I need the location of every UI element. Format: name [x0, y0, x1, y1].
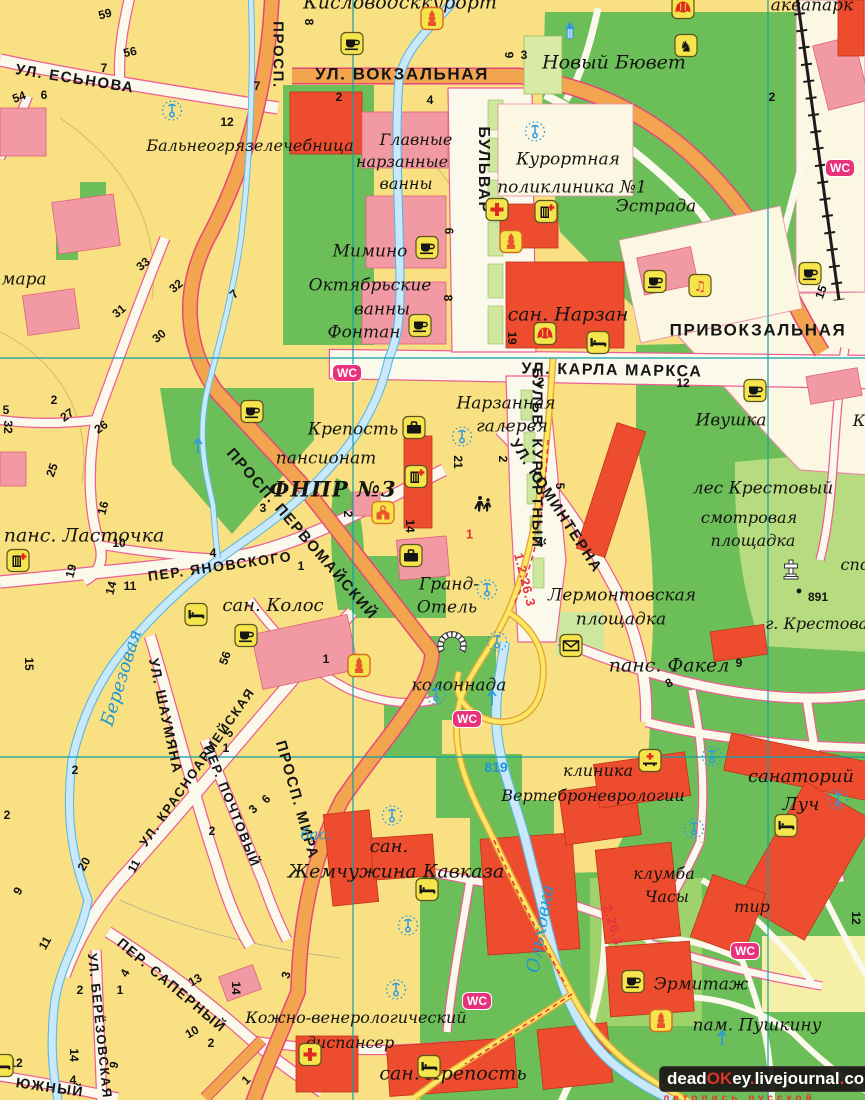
- medbuilding-icon: [404, 465, 428, 494]
- flowarrow-icon: [188, 435, 208, 462]
- dot-icon: [795, 582, 803, 600]
- place-label-san-kolos: сан. Колос: [222, 597, 323, 615]
- theater-icon: [533, 322, 557, 351]
- place-label-otel: Отель: [417, 600, 477, 617]
- place-label-vertebro: Вертеброневрологии: [501, 788, 684, 804]
- house-number: 30: [150, 327, 168, 345]
- flowarrow-icon: [712, 1027, 732, 1054]
- fountain-icon: [522, 119, 548, 150]
- street-label-ul-berezovskaya: УЛ. БЕРЁЗОВСКАЯ: [86, 953, 114, 1100]
- house-number: 11: [37, 935, 54, 952]
- house-number: 2: [769, 91, 776, 103]
- house-number: 10: [112, 537, 125, 549]
- house-number: 20: [75, 855, 92, 873]
- place-label-kozhno: Кожно-венерологический: [245, 1010, 466, 1026]
- music-icon: ♫: [688, 274, 712, 303]
- colonnade-icon: [435, 626, 469, 661]
- place-label-route-2-26-3: 2.26.3: [601, 903, 626, 947]
- place-label-berezovaya: Березовая: [99, 628, 145, 729]
- medbuilding-icon: [6, 549, 30, 578]
- fountain-icon: [379, 803, 405, 834]
- place-label-luch: Луч: [783, 796, 820, 814]
- house-number: 5: [554, 483, 566, 490]
- coffee-icon: [234, 624, 258, 653]
- house-number: 7: [101, 62, 108, 74]
- place-label-route-1-2-26-3: 1.2.26.3: [512, 552, 538, 609]
- house-number: 27: [58, 406, 76, 423]
- place-label-krepost: Крепость: [308, 422, 398, 439]
- place-label-chasy: Часы: [645, 889, 689, 905]
- place-label-estrada: Эстрада: [616, 199, 697, 216]
- watermark-segment: dead: [667, 1069, 707, 1088]
- house-number: 14: [103, 580, 118, 596]
- coffee-icon: [643, 270, 667, 299]
- coffee-icon: [743, 379, 767, 408]
- svg-text:♞: ♞: [679, 38, 692, 56]
- cross-icon: [485, 198, 509, 227]
- map-overlay: УЛ. ЕСЬНОВАПРОСП.УЛ. ВОКЗАЛЬНАЯБУЛЬВАРБУ…: [0, 0, 865, 1100]
- tower-icon: [499, 230, 523, 259]
- house-number: 21: [452, 455, 464, 468]
- house-number: 11: [124, 580, 137, 592]
- house-number: 9: [503, 52, 515, 59]
- place-label-san-zh: сан.: [370, 838, 408, 856]
- street-label-per-saperny: ПЕР. САПЕРНЫЙ: [115, 935, 229, 1034]
- house-number: 3: [521, 49, 528, 61]
- fountain-icon: [681, 816, 707, 847]
- house-number: 13: [186, 971, 204, 988]
- coffee-icon: [415, 236, 439, 265]
- house-number: 8: [663, 676, 675, 690]
- fountain-icon: [699, 744, 725, 775]
- place-label-fontan: Фонтан: [328, 325, 401, 342]
- place-label-zhemchuzhina: Жемчужина Кавказа: [288, 863, 504, 882]
- bed-icon: [586, 331, 610, 360]
- street-label-ul-vokzalnaya: УЛ. ВОКЗАЛЬНАЯ: [315, 66, 489, 83]
- school-icon: [371, 501, 395, 530]
- house-number: 2: [342, 511, 354, 518]
- house-number: 56: [122, 45, 138, 60]
- wc-icon: WC: [730, 942, 760, 960]
- place-label-ploshchadka-1: площадка: [711, 533, 796, 549]
- house-number: 2: [77, 984, 84, 996]
- house-number: 1: [239, 1073, 252, 1086]
- place-label-grand: Гранд-: [419, 577, 479, 594]
- house-number: 6: [443, 228, 455, 235]
- tower-icon: [420, 7, 444, 36]
- house-number: 2: [336, 91, 343, 103]
- envelope-icon: [559, 634, 583, 663]
- place-label-les-krestovy: лес Крестовый: [693, 481, 833, 498]
- svg-text:♫: ♫: [694, 279, 707, 295]
- bluetower-icon: [558, 20, 582, 49]
- house-number: 8: [442, 295, 454, 302]
- watermark-segment: OK: [707, 1069, 733, 1088]
- bed-icon: [415, 878, 439, 907]
- place-label-spo: спо: [841, 557, 865, 573]
- wc-icon: WC: [332, 364, 362, 382]
- tower-icon: [347, 654, 371, 683]
- house-number: 4: [70, 1074, 77, 1086]
- place-label-mara: мара: [1, 272, 46, 289]
- coffee-icon: [798, 262, 822, 291]
- house-number: 10: [183, 1023, 201, 1040]
- place-label-ploshchadka-2: площадка: [576, 612, 666, 629]
- place-label-mimino: Мимино: [333, 244, 408, 261]
- place-label-k-fragment: К: [853, 413, 865, 429]
- place-label-smotrovaya: смотровая: [701, 510, 797, 526]
- house-number: 19: [63, 563, 78, 579]
- house-number: 32: [167, 277, 185, 295]
- fountain-icon: [395, 913, 421, 944]
- street-label-prosp-top: ПРОСП.: [271, 21, 286, 89]
- place-label-elev-819: 819: [484, 760, 507, 774]
- street-label-privokzalnaya: ПРИВОКЗАЛЬНАЯ: [670, 322, 847, 339]
- house-number: 15: [23, 657, 35, 670]
- place-label-san-narzan: сан. Нарзан: [508, 306, 629, 325]
- cross-icon: [298, 1043, 322, 1072]
- house-number: 7: [254, 80, 261, 92]
- house-number: 19: [506, 331, 518, 344]
- street-label-per-yanovskogo: ПЕР. ЯНОВСКОГО: [147, 549, 293, 583]
- street-label-ul-esnova: УЛ. ЕСЬНОВА: [14, 62, 135, 96]
- house-number: 2: [209, 825, 216, 837]
- house-number: 891: [808, 591, 828, 603]
- house-number: 12: [220, 116, 233, 128]
- bed-icon: [0, 1054, 14, 1083]
- house-number: 1: [298, 560, 305, 572]
- house-number: 2: [51, 394, 58, 406]
- place-label-akvapark: аквапарк: [771, 0, 853, 15]
- bed-icon: [184, 603, 208, 632]
- watermark-subtitle: летопись русской усадьбы: [659, 1093, 865, 1100]
- suitcase-icon: [402, 416, 426, 445]
- place-label-klinika: клиника: [563, 763, 633, 779]
- house-number: 6: [259, 792, 272, 805]
- fountain-icon: [383, 977, 409, 1008]
- place-label-pans-lastochka: панс. Ласточка: [4, 527, 165, 546]
- watermark-segment: livejournal: [755, 1069, 840, 1088]
- house-number: 26: [92, 418, 110, 435]
- place-label-balneo: Бальнеогрязелечебница: [146, 138, 353, 154]
- fountain-icon: [484, 629, 510, 660]
- place-label-novy-byuvet: Новый Бювет: [542, 54, 686, 73]
- house-number: 59: [97, 6, 113, 21]
- place-label-kurortnaya: Курортная: [516, 152, 620, 169]
- bed-icon: [417, 1055, 441, 1084]
- place-label-kislovodskkurort: Кисловодсккурорт: [303, 0, 497, 13]
- horse-icon: ♞: [674, 34, 698, 63]
- wc-icon: WC: [825, 159, 855, 177]
- house-number: 54: [11, 89, 28, 105]
- house-number: 4: [427, 94, 434, 106]
- watermark-segment: com: [844, 1069, 865, 1088]
- house-number: 2: [497, 456, 509, 463]
- pedestrians-icon: [472, 494, 496, 523]
- place-label-lermontovskaya: Лермонтовская: [548, 588, 696, 605]
- place-label-galereya: галерея: [476, 419, 548, 436]
- watermark: deadOKey.livejournal.com летопись русско…: [659, 1066, 865, 1100]
- coffee-icon: [240, 400, 264, 429]
- place-label-pansionat: пансионат: [276, 451, 376, 468]
- house-number: 7: [227, 287, 240, 300]
- house-number: 1: [117, 984, 124, 996]
- coffee-icon: [621, 970, 645, 999]
- house-number: 2: [4, 809, 11, 821]
- fountain-icon: [423, 682, 449, 713]
- house-number: 4: [210, 547, 217, 559]
- bed-icon: [774, 814, 798, 843]
- watermark-text: deadOKey.livejournal.com: [659, 1066, 865, 1092]
- house-number: 1: [223, 742, 230, 754]
- house-number: 3: [260, 502, 267, 514]
- place-label-ermitazh: Эрмитаж: [654, 977, 749, 994]
- flowarrow-icon: [482, 687, 502, 714]
- city-map[interactable]: УЛ. ЕСЬНОВАПРОСП.УЛ. ВОКЗАЛЬНАЯБУЛЬВАРБУ…: [0, 0, 865, 1100]
- house-number: 4: [118, 967, 132, 979]
- place-label-oktyabrskie: Октябрьские: [309, 278, 432, 295]
- house-number: 1: [323, 653, 330, 665]
- house-number: 56: [217, 650, 233, 667]
- place-label-bas: бас.: [300, 828, 331, 843]
- place-label-sanatoriy: санаторий: [748, 768, 854, 786]
- house-number: 2: [208, 1037, 215, 1049]
- fountain-icon: [449, 424, 475, 455]
- house-number: 2: [72, 764, 79, 776]
- house-number: 8: [303, 19, 315, 26]
- suitcase-icon: [399, 544, 423, 573]
- place-label-g-krestovaya: г. Крестовая: [765, 616, 865, 632]
- house-number: 14: [404, 519, 416, 532]
- street-label-ul-shaumyana: УЛ. ШАУМЯНА: [147, 657, 185, 775]
- place-label-san-krepost: сан. Крепость: [379, 1065, 526, 1084]
- house-number: 33: [134, 255, 152, 273]
- fountain-icon: [159, 98, 185, 129]
- house-number: 12: [676, 377, 689, 389]
- place-label-pans-fakel: панс. Факел: [609, 657, 730, 676]
- wc-icon: WC: [452, 710, 482, 728]
- place-label-fnpr: ФНПР №3: [269, 479, 396, 500]
- theater-icon: [671, 0, 695, 25]
- house-number: 25: [44, 462, 60, 479]
- tower-icon: [649, 1009, 673, 1038]
- wc-icon: WC: [462, 992, 492, 1010]
- place-label-narzannaya: Нарзанная: [456, 396, 555, 413]
- place-label-narzannye: нарзанные: [356, 154, 448, 170]
- place-label-tir: тир: [734, 899, 770, 915]
- place-label-olkhovka: Ольховка: [524, 884, 557, 975]
- place-label-klumba: клумба: [633, 866, 695, 882]
- house-number: 32: [2, 420, 14, 433]
- house-number: 6: [41, 89, 48, 101]
- house-number: 2: [538, 376, 545, 388]
- house-number: 9: [11, 885, 25, 897]
- house-number: 3: [279, 970, 292, 980]
- medbed-icon: [638, 749, 662, 778]
- coffee-icon: [408, 314, 432, 343]
- house-number: 14: [68, 1048, 80, 1061]
- watermark-segment: ey: [732, 1069, 750, 1088]
- place-label-vanny-2: ванны: [354, 302, 410, 319]
- fountain-icon: [474, 577, 500, 608]
- house-number: 9: [736, 657, 743, 669]
- place-label-ivushka: Ивушка: [696, 413, 767, 430]
- house-number: 12: [850, 911, 862, 924]
- house-number: 3: [246, 802, 259, 815]
- place-label-glavnye: Главные: [380, 132, 453, 148]
- house-number: 16: [95, 500, 110, 516]
- house-number: 5: [3, 404, 10, 416]
- medbuilding-icon: [534, 200, 558, 229]
- house-number: 11: [126, 858, 143, 875]
- coffee-icon: [340, 32, 364, 61]
- place-label-poliklinika: поликлиника №1: [497, 180, 647, 197]
- house-number: 14: [230, 981, 242, 994]
- place-label-route-1: 1: [466, 528, 474, 541]
- house-number: 31: [110, 302, 128, 320]
- fountain-icon: [825, 787, 851, 818]
- house-number: 4: [537, 537, 544, 549]
- place-label-vanny-1: ванны: [380, 176, 433, 192]
